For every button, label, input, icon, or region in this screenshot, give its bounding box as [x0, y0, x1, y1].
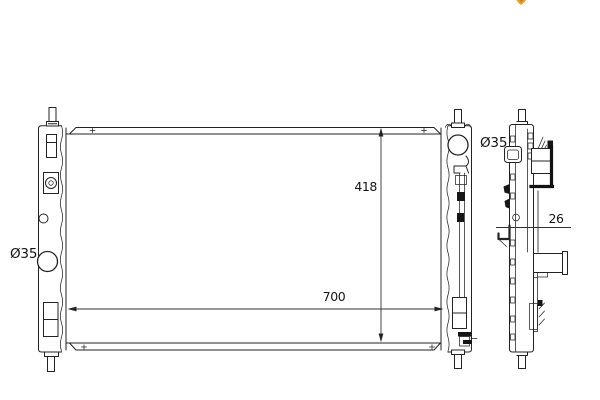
- mounting-pin-bottom-left: [45, 352, 59, 372]
- front-core: [66, 128, 441, 351]
- valve-wing: [463, 340, 472, 344]
- front-left-tank: [38, 108, 63, 372]
- channel-clip-upper: [457, 192, 465, 201]
- dimension-annotations: 418 700 26 Ø35 Ø35: [10, 128, 571, 342]
- lower-hatch-lines: [539, 303, 545, 325]
- side-right-bracket: [531, 147, 553, 187]
- height-arrow-down: [379, 334, 384, 343]
- width-arrow-right: [435, 307, 444, 312]
- pipe-nub: [538, 273, 548, 278]
- side-left-tabs: [504, 184, 510, 209]
- side-left-hook-tail: [499, 240, 507, 247]
- width-arrow-left: [68, 307, 77, 312]
- small-port-circle: [39, 214, 48, 223]
- side-right-bulge: [534, 278, 538, 332]
- left-tank-wavy-edge: [60, 126, 62, 352]
- core-outline: [66, 128, 441, 351]
- right-tank-channel: [456, 173, 467, 297]
- depth-dim-label: 26: [548, 211, 564, 226]
- left-lower-bracket: [44, 303, 59, 337]
- height-dim-label: 418: [354, 179, 377, 194]
- inlet-diameter-label: Ø35: [10, 246, 37, 262]
- outlet-diameter-label: Ø35: [480, 135, 507, 151]
- drawing-canvas: 418 700 26 Ø35 Ø35: [0, 0, 600, 400]
- dimension-height: 418: [354, 128, 383, 342]
- outlet-port-circle: [448, 135, 468, 155]
- right-upper-bracket-hook: [454, 156, 469, 173]
- lower-black-tab: [538, 300, 543, 306]
- side-small-hole: [513, 214, 520, 221]
- side-pin-bottom: [517, 352, 528, 369]
- channel-clip-lower: [457, 213, 464, 222]
- bracket-box-upper: [532, 149, 551, 162]
- mounting-pin-top-right: [452, 110, 465, 128]
- radiator-front-view: [38, 108, 478, 372]
- right-lower-brackets: [453, 298, 467, 329]
- right-tank-wavy-edge: [447, 126, 449, 352]
- valve-cap: [458, 332, 471, 337]
- bottom-drain-valve: [458, 332, 477, 346]
- partial-logo: [517, 0, 527, 5]
- radiator-technical-drawing: 418 700 26 Ø35 Ø35: [0, 0, 600, 400]
- bracket-box-lower: [532, 161, 551, 174]
- side-left-notches: [511, 136, 516, 340]
- pipe-end-cap: [563, 252, 568, 275]
- drain-plug-circle: [46, 178, 57, 189]
- width-dim-label: 700: [323, 289, 346, 304]
- side-outlet-pipe: [534, 252, 568, 278]
- filler-neck: [47, 135, 57, 158]
- pipe-body: [534, 254, 563, 273]
- side-pin-top: [517, 110, 528, 125]
- inlet-port-circle: [38, 252, 58, 272]
- header-tick-marks: [82, 128, 435, 349]
- height-arrow-up: [379, 128, 384, 137]
- mounting-pin-top-left: [47, 108, 59, 127]
- side-lower-right-detail: [530, 300, 545, 330]
- dimension-width: 700: [68, 289, 444, 311]
- front-right-tank: [446, 110, 478, 369]
- mounting-pin-bottom-right: [452, 350, 465, 369]
- radiator-side-view: [499, 110, 568, 369]
